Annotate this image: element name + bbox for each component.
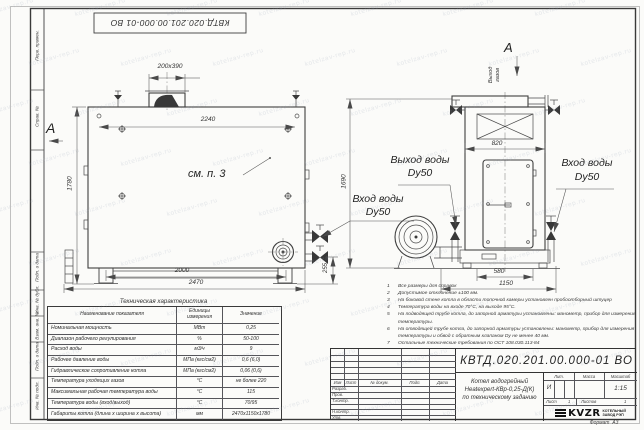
role-utv: Утв. [331,415,357,421]
product-name-cell: Котел водогрейный Heatexpert-КВр-0,25-Д(… [456,373,544,421]
note-number: 6 [386,326,396,340]
tech-row-name: Температура уходящих газов [48,377,177,388]
product-name-line2: Heatexpert-КВр-0,25-Д(К) [456,386,543,394]
tech-row-value: 2470х1150х1780 [223,409,279,420]
margin-label-inv-podl: Инв. № подл. [35,361,40,430]
title-block-signature-grid: Изм Лист № докум. Подп. Дата Разраб. Про… [331,349,456,421]
tech-row-value: 9 [223,345,279,356]
view-marker-a-front: А [46,120,55,136]
note-text: Остальные технические требования по ОСТ … [398,340,636,347]
rev-col-list: Лист [344,379,358,386]
dim-2000: 2000 [158,267,206,274]
note-text: На боковой стене котла в области топочно… [398,297,636,304]
label-water-outlet-side-dn: Dy50 [382,167,458,179]
note-text: Допустимое отклонение ±100 мм. [398,290,636,297]
dim-580: 580 [479,268,519,275]
format-label: Формат А3 [574,420,634,426]
dim-chimney-200x390: 200х390 [138,63,202,70]
tech-row-units: МВт [177,324,223,335]
sheets-number: 1 [624,398,626,405]
tech-row-value: 0,25 [223,324,279,335]
rev-col-data: Дата [429,379,456,386]
tech-row-value: 0,6 (6,0) [223,356,279,367]
tech-row-name: Номинальная мощность [48,324,177,335]
note-item: 3На боковой стене котла в области топочн… [386,297,636,304]
label-water-inlet-front-dn: Dy50 [340,206,416,218]
title-block-right-grid: Лит. Масса Масштаб И 1:15 Лист 1 Листов … [544,373,637,421]
format-word: Формат [590,420,610,426]
product-name-line3: по техническому заданию [456,394,543,402]
margin-label-sprav-no: Справ. № [35,82,40,152]
tech-row-units: °С [177,399,223,410]
kvzr-logo-text: KVZR [568,408,600,419]
tech-row-name: Максимальная рабочая температура воды [48,388,177,399]
note-number: 3 [386,297,396,304]
title-block-doc-number: КВТД.020.201.00.000-01 ВО [456,349,637,373]
kvzr-logo-icon [555,409,566,417]
role-tkontr: Т.контр. [331,398,357,404]
note-text: Все размеры для справок [398,283,636,290]
technical-notes: 1Все размеры для справок 2Допустимое отк… [386,283,636,347]
tech-row-units: °С [177,377,223,388]
tech-table-title: Техническая характеристика [47,298,280,305]
product-name-line1: Котел водогрейный [456,378,543,386]
tech-row-units: % [177,335,223,346]
note-number: 5 [386,311,396,325]
tech-row-value: 115 [223,388,279,399]
note-item: 6На отводящей трубе котла, до запорной а… [386,326,636,340]
dim-820: 820 [477,140,517,147]
label-water-inlet-front: Вход воды [340,193,416,205]
water-valve-symbols [450,216,556,262]
dim-1780: 1780 [67,169,74,199]
note-text: На отводящей трубе котла, до запорной ар… [398,326,636,340]
scale-value: 1:15 [604,385,637,392]
margin-label-perv-primen: Перв. примен. [35,11,40,81]
tech-row-units: мм [177,409,223,420]
note-number: 1 [386,283,396,290]
note-item: 5На подводящей трубе котла, до запорной … [386,311,636,325]
tech-table: Наименование показателя Единицы измерени… [47,306,282,421]
drawing-sheet: КВТД.020.201.00.000-01 ВО Перв. примен. … [0,0,644,430]
sheet-label: Лист [546,398,557,405]
note-number: 2 [386,290,396,297]
label-water-outlet-side: Выход воды [382,154,458,166]
label-gas-outlet-line1: Выход [488,54,495,96]
label-gas-outlet-line2: газов [495,54,502,96]
note-text: На подводящей трубе котла, до запорной а… [398,311,636,325]
tech-col-header-value: Значение [223,307,279,324]
tech-row-value: 50-100 [223,335,279,346]
kvzr-logo-subtitle-line2: ЗАВОД РЭП [603,413,626,417]
rev-col-izm: Изм [331,379,344,386]
format-size: А3 [612,420,618,426]
kvzr-logo-subtitle: КОТЕЛЬНЫЙ ЗАВОД РЭП [603,409,626,418]
tech-row-name: Расход воды [48,345,177,356]
title-block: Изм Лист № докум. Подп. Дата Разраб. Про… [330,348,636,420]
rev-col-ndoc: № докум. [358,379,401,386]
lit-value: И [544,385,554,391]
side-view-geometry [394,92,560,272]
tech-row-units: МПа (кгс/см2) [177,367,223,378]
view-marker-a-side: А [504,40,513,55]
mass-label: Масса [574,373,604,380]
note-number: 7 [386,340,396,347]
tech-row-name: Гидравлическое сопротивление котла [48,367,177,378]
sheet-number: 1 [568,398,570,405]
sheets-label: Листов [581,398,596,405]
tech-row-value: 70/95 [223,399,279,410]
tech-row-name: Рабочее давление воды [48,356,177,367]
manufacturer-logo: KVZR КОТЕЛЬНЫЙ ЗАВОД РЭП [544,405,637,421]
top-stamp-doc-number: КВТД.020.201.00.000-01 ВО [94,13,246,33]
label-water-inlet-side-dn: Dy50 [549,171,625,183]
note-text: Температура воды на входе 70°С, на выход… [398,304,636,311]
note-number: 4 [386,304,396,311]
tech-row-value: не более 220 [223,377,279,388]
rev-col-podp: Подп. [401,379,429,386]
dim-2470: 2470 [172,279,220,286]
see-note-3-ref: см. п. 3 [188,168,225,180]
tech-row-units: м3/ч [177,345,223,356]
scale-label: Масштаб [604,373,637,380]
tech-row-name: Температура воды (вход/выход) [48,399,177,410]
label-water-inlet-side: Вход воды [549,157,625,169]
dim-255: 255 [323,254,329,282]
note-item: 2Допустимое отклонение ±100 мм. [386,290,636,297]
dim-2240: 2240 [182,116,234,123]
tech-row-units: °С [177,388,223,399]
tech-row-units: МПа (кгс/см2) [177,356,223,367]
note-item: 1Все размеры для справок [386,283,636,290]
note-item: 7Остальные технические требования по ОСТ… [386,340,636,347]
tech-row-name: Габариты котла (длина х ширина х высота) [48,409,177,420]
tech-row-value: 0,06 (0,6) [223,367,279,378]
note-item: 4Температура воды на входе 70°С, на выхо… [386,304,636,311]
label-gas-outlet: Выход газов [488,54,502,96]
tech-row-name: Диапазон рабочего регулирования [48,335,177,346]
lit-label: Лит. [544,373,574,380]
tech-col-header-units: Единицы измерения [177,307,223,324]
tech-col-header-name: Наименование показателя [48,307,177,324]
